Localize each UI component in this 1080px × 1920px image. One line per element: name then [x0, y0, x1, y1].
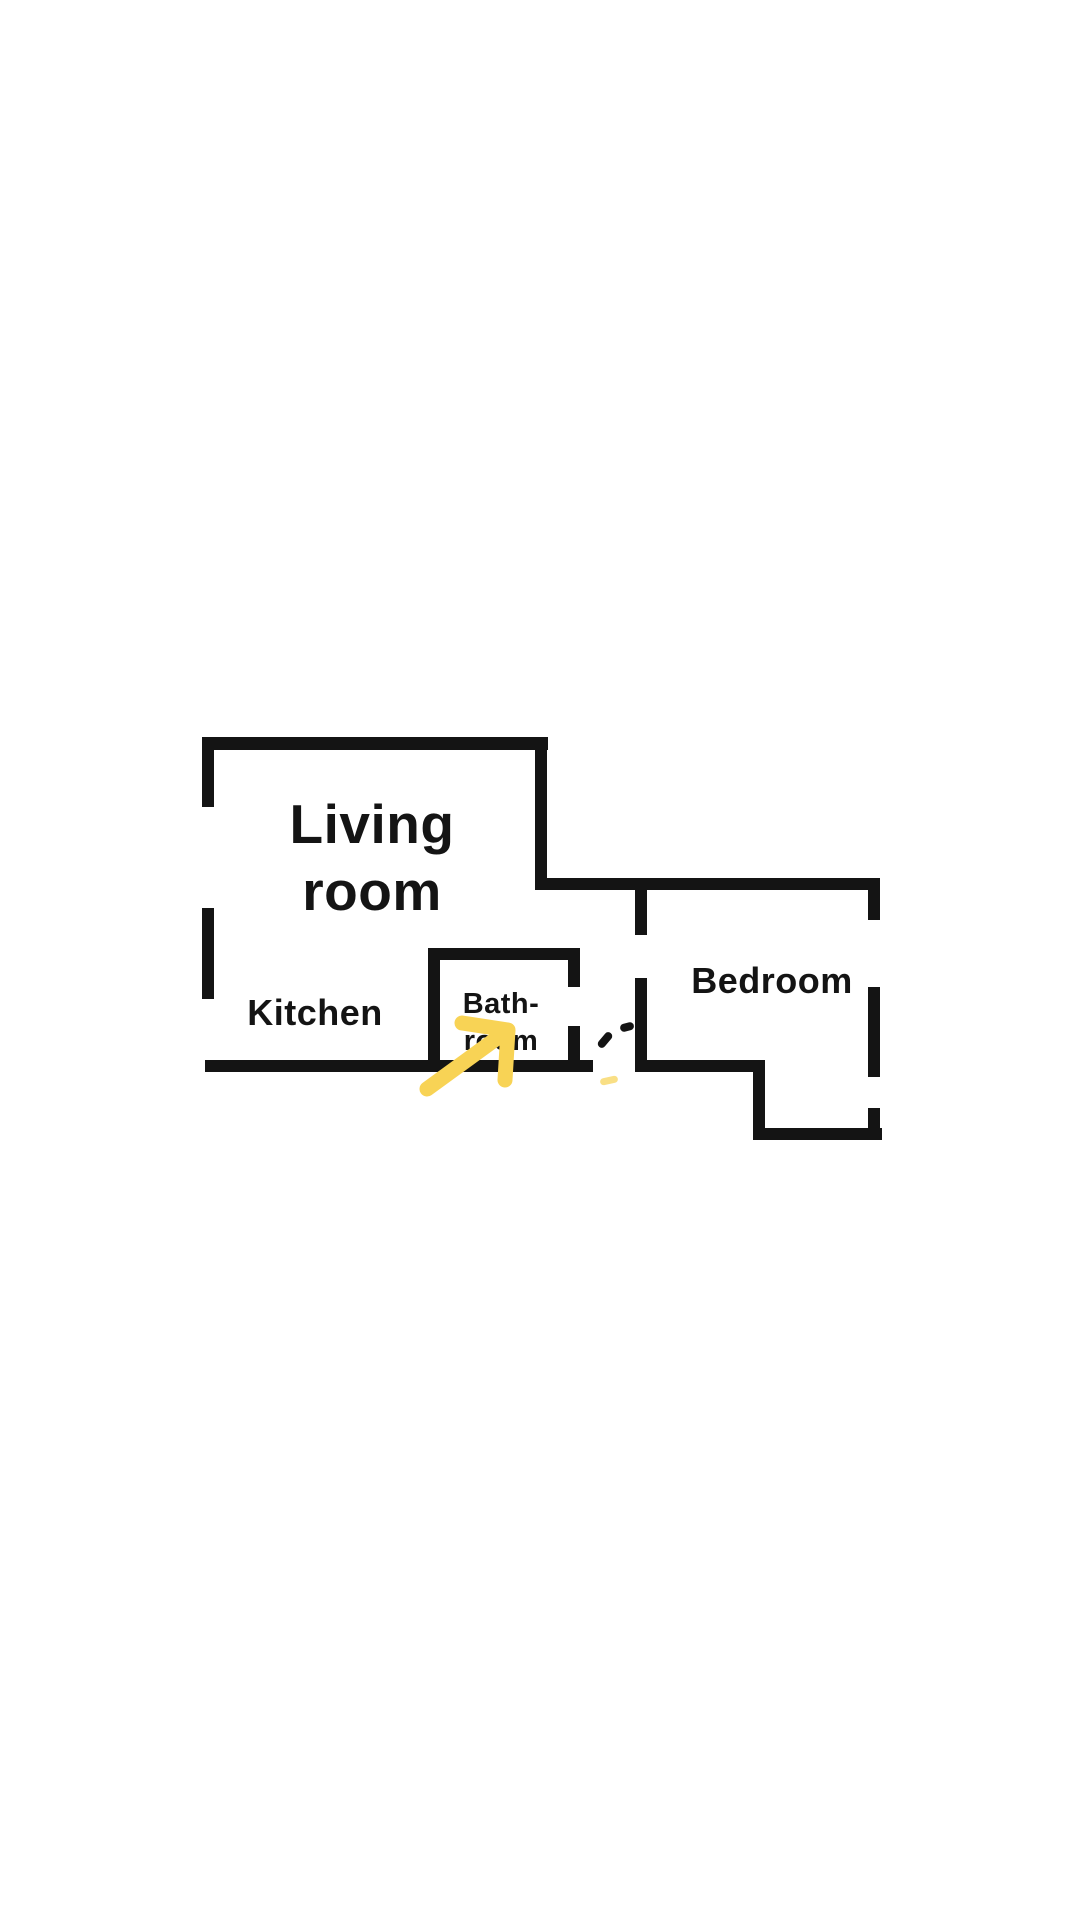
bedroom-label: Bedroom — [691, 963, 853, 999]
bedroom-right-wall-lower — [868, 1108, 880, 1140]
bedroom-left-wall-lower — [635, 978, 647, 1072]
living-room-label-line2: room — [290, 858, 455, 925]
living-room-top-wall — [202, 737, 548, 750]
kitchen-label-text: Kitchen — [247, 995, 383, 1031]
bedroom-right-wall-middle — [868, 987, 880, 1077]
living-room-right-wall — [535, 737, 547, 890]
bedroom-left-wall-upper — [635, 890, 647, 935]
floor-plan: Living room Kitchen Bath- room Bedroom — [0, 0, 1080, 1920]
highlight-arrow — [0, 0, 1080, 1920]
bedroom-bottom-wall-upper — [635, 1060, 765, 1072]
bathroom-label-line2: room — [463, 1023, 540, 1060]
door-swing-dash — [596, 1031, 614, 1050]
bathroom-right-wall-lower — [568, 1026, 580, 1072]
bathroom-left-wall — [428, 948, 440, 1072]
kitchen-label: Kitchen — [247, 995, 383, 1031]
door-swing-dash — [619, 1021, 635, 1032]
bathroom-label-line1: Bath- — [463, 986, 540, 1023]
living-room-left-wall-lower — [202, 908, 214, 999]
bedroom-bottom-wall-lower — [753, 1128, 882, 1140]
kitchen-bottom-wall — [205, 1060, 593, 1072]
bathroom-top-wall — [428, 948, 580, 960]
bedroom-top-wall — [535, 878, 880, 890]
bedroom-right-wall-upper — [868, 878, 880, 920]
door-swing-dash — [599, 1075, 618, 1086]
living-room-left-wall-upper — [202, 737, 214, 807]
bathroom-label: Bath- room — [463, 986, 540, 1060]
living-room-label-line1: Living — [290, 791, 455, 858]
living-room-label: Living room — [290, 791, 455, 925]
bathroom-right-wall-upper — [568, 948, 580, 987]
bedroom-label-text: Bedroom — [691, 963, 853, 999]
